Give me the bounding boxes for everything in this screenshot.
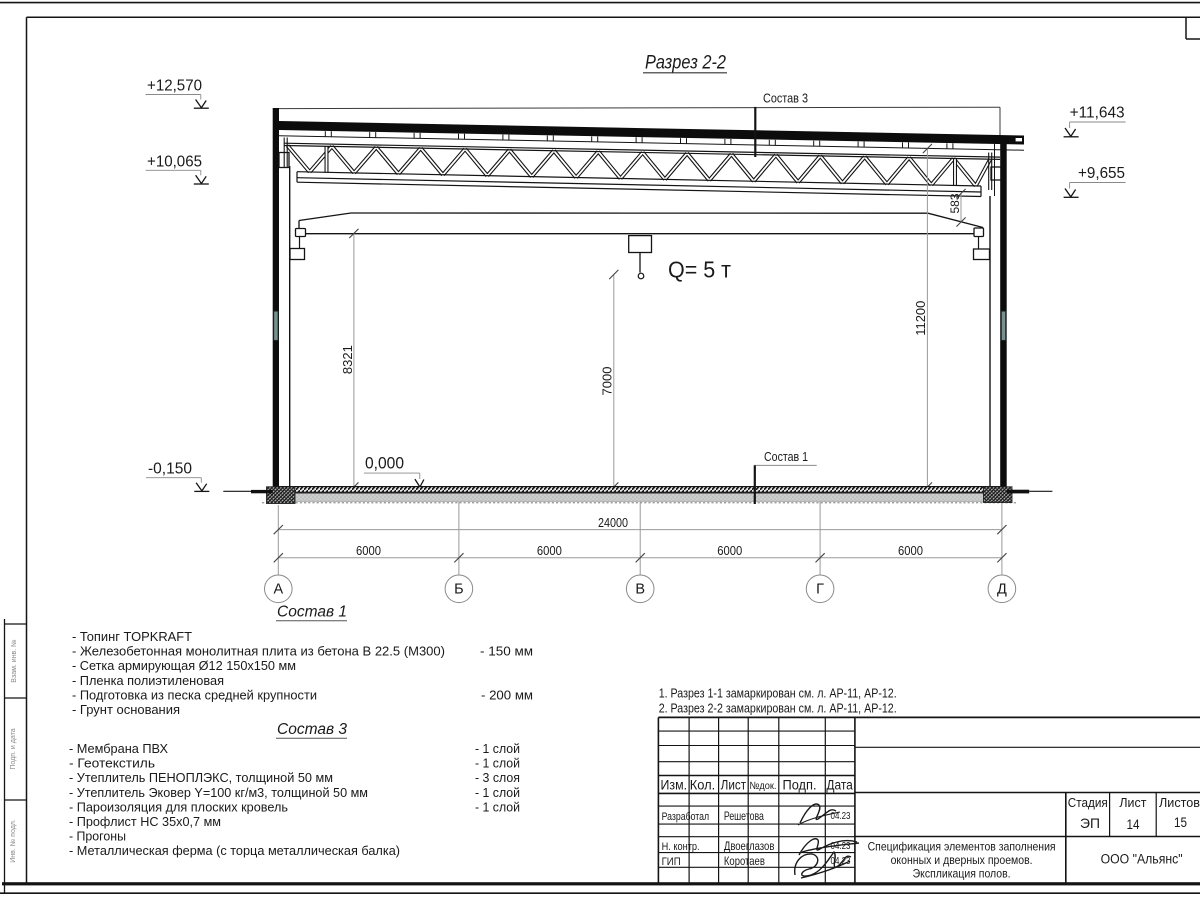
svg-text:- Подготовка из песка средней: - Подготовка из песка средней крупности bbox=[72, 687, 317, 702]
svg-text:Стадия: Стадия bbox=[1068, 795, 1108, 810]
svg-text:Решетова: Решетова bbox=[724, 809, 764, 823]
svg-text:15: 15 bbox=[1174, 814, 1187, 830]
svg-text:11200: 11200 bbox=[913, 301, 928, 336]
svg-text:Разработал: Разработал bbox=[662, 811, 710, 823]
svg-text:- Пленка полиэтиленовая: - Пленка полиэтиленовая bbox=[72, 673, 224, 688]
svg-text:Дата: Дата bbox=[826, 778, 853, 793]
svg-text:Взам. инв. №: Взам. инв. № bbox=[11, 639, 18, 682]
svg-text:Лист: Лист bbox=[1119, 795, 1146, 810]
svg-text:Разрез 2-2: Разрез 2-2 bbox=[645, 53, 726, 74]
svg-text:- 1 слой: - 1 слой bbox=[475, 785, 520, 800]
svg-text:- Сетка армирующая Ø12 150х150: - Сетка армирующая Ø12 150х150 мм bbox=[72, 658, 296, 673]
svg-text:Состав 1: Состав 1 bbox=[277, 604, 347, 621]
svg-text:-0,150: -0,150 bbox=[148, 461, 192, 478]
svg-text:- Утеплитель Эковер Y=100 кг/м: - Утеплитель Эковер Y=100 кг/м3, толщино… bbox=[69, 785, 368, 800]
svg-text:ГИП: ГИП bbox=[662, 856, 681, 868]
svg-text:Коротаев: Коротаев bbox=[724, 854, 765, 868]
svg-text:Инв. № подл.: Инв. № подл. bbox=[10, 819, 17, 863]
svg-text:- Железобетонная монолитная п: - Железобетонная монолитная плита из бет… bbox=[72, 644, 445, 659]
svg-text:- 1 слой: - 1 слой bbox=[475, 799, 520, 814]
svg-text:1. Разрез 1-1 замаркирован см.: 1. Разрез 1-1 замаркирован см. л. АР-11,… bbox=[659, 687, 897, 701]
svg-text:0,000: 0,000 bbox=[365, 453, 404, 472]
svg-text:Лист: Лист bbox=[721, 778, 747, 793]
svg-text:Q= 5 т: Q= 5 т bbox=[668, 257, 731, 283]
svg-text:- Профлист НС 35х0,7 мм: - Профлист НС 35х0,7 мм bbox=[69, 814, 221, 829]
svg-text:- 200 мм: - 200 мм bbox=[481, 687, 533, 702]
svg-text:+9,655: +9,655 bbox=[1078, 165, 1125, 182]
svg-text:- Утеплитель ПЕНОПЛЭКС, толщин: - Утеплитель ПЕНОПЛЭКС, толщиной 50 мм bbox=[69, 770, 333, 785]
svg-text:Кол.: Кол. bbox=[690, 778, 716, 793]
svg-text:- Прогоны: - Прогоны bbox=[69, 829, 126, 844]
svg-text:8321: 8321 bbox=[340, 345, 355, 374]
svg-text:24000: 24000 bbox=[598, 515, 628, 530]
svg-text:6000: 6000 bbox=[717, 543, 742, 558]
svg-text:- Мембрана ПВХ: - Мембрана ПВХ bbox=[69, 741, 168, 756]
svg-text:В: В bbox=[635, 582, 645, 598]
svg-text:04.23: 04.23 bbox=[831, 810, 851, 822]
svg-text:- Геотекстиль: - Геотекстиль bbox=[69, 756, 155, 771]
svg-text:+12,570: +12,570 bbox=[147, 78, 202, 95]
svg-text:6000: 6000 bbox=[356, 543, 381, 558]
svg-text:- Грунт основания: - Грунт основания bbox=[72, 702, 180, 717]
svg-text:Двоеглазов: Двоеглазов bbox=[724, 839, 775, 853]
svg-text:2. Разрез 2-2 замаркирован см.: 2. Разрез 2-2 замаркирован см. л. АР-11,… bbox=[659, 701, 897, 715]
svg-text:+11,643: +11,643 bbox=[1070, 105, 1125, 122]
svg-text:Состав 1: Состав 1 bbox=[764, 449, 808, 464]
svg-text:Состав 3: Состав 3 bbox=[763, 90, 808, 105]
svg-text:Спецификация элементов заполне: Спецификация элементов заполнения bbox=[868, 840, 1056, 854]
svg-text:- Топинг TOPKRAFT: - Топинг TOPKRAFT bbox=[72, 629, 192, 644]
svg-text:Н. контр.: Н. контр. bbox=[662, 841, 700, 853]
svg-text:583: 583 bbox=[948, 193, 962, 213]
svg-text:оконных и дверных проемов.: оконных и дверных проемов. bbox=[891, 853, 1033, 867]
svg-text:- Пароизоляция для плоских кро: - Пароизоляция для плоских кровель bbox=[69, 799, 288, 814]
svg-text:- 1 слой: - 1 слой bbox=[475, 756, 520, 771]
svg-text:А: А bbox=[273, 582, 283, 598]
svg-text:6000: 6000 bbox=[537, 543, 562, 558]
svg-text:- Металлическая ферма (с торца: - Металлическая ферма (с торца металличе… bbox=[69, 843, 400, 858]
svg-text:Подп.: Подп. bbox=[783, 778, 817, 793]
svg-text:Состав 3: Состав 3 bbox=[277, 721, 347, 738]
svg-text:Экспликация полов.: Экспликация полов. bbox=[913, 866, 1011, 880]
svg-text:7000: 7000 bbox=[600, 367, 615, 396]
svg-text:14: 14 bbox=[1127, 816, 1140, 832]
svg-text:Листов: Листов bbox=[1159, 795, 1200, 810]
svg-text:Б: Б bbox=[454, 582, 464, 598]
svg-text:- 3 слоя: - 3 слоя bbox=[475, 770, 520, 785]
svg-text:Д: Д bbox=[997, 582, 1007, 598]
svg-text:ЭП: ЭП bbox=[1080, 815, 1100, 831]
svg-text:+10,065: +10,065 bbox=[147, 153, 202, 170]
svg-text:6000: 6000 bbox=[898, 543, 923, 558]
svg-text:Изм.: Изм. bbox=[661, 778, 688, 793]
svg-text:- 150 мм: - 150 мм bbox=[480, 644, 533, 659]
svg-text:- 1 слой: - 1 слой bbox=[475, 741, 520, 756]
svg-text:ООО "Альянс": ООО "Альянс" bbox=[1101, 852, 1183, 867]
svg-text:№док.: №док. bbox=[750, 780, 777, 792]
svg-text:Подп. и дата: Подп. и дата bbox=[10, 728, 17, 769]
svg-text:Г: Г bbox=[816, 582, 824, 598]
